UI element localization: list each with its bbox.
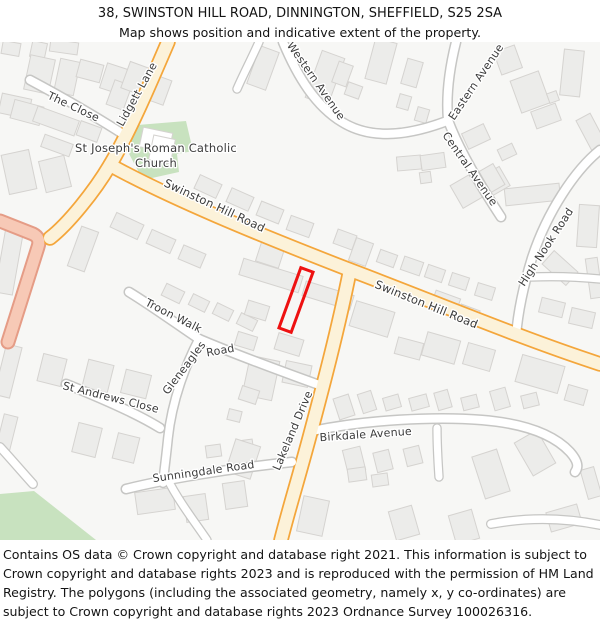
building	[419, 171, 431, 183]
header: 38, SWINSTON HILL ROAD, DINNINGTON, SHEF…	[0, 0, 600, 42]
page-title: 38, SWINSTON HILL ROAD, DINNINGTON, SHEF…	[0, 5, 600, 24]
map-svg: The CloseLidgett LaneSt Joseph's Roman C…	[0, 42, 600, 540]
building	[396, 155, 421, 171]
road-birkdale-stub	[437, 428, 439, 477]
building	[560, 49, 585, 97]
map-canvas: The CloseLidgett LaneSt Joseph's Roman C…	[0, 42, 600, 540]
page-subtitle: Map shows position and indicative extent…	[0, 24, 600, 42]
title-plan-page: 38, SWINSTON HILL ROAD, DINNINGTON, SHEF…	[0, 0, 600, 625]
map-label-st-joseph-s-roman-catholic: St Joseph's Roman Catholic	[75, 141, 237, 155]
building	[227, 409, 242, 423]
building	[222, 481, 247, 510]
footer: Contains OS data © Crown copyright and d…	[0, 540, 600, 622]
building	[205, 444, 222, 458]
building	[371, 473, 389, 487]
map-label-church: Church	[135, 156, 177, 170]
building	[1, 42, 21, 56]
road-high-nook-branch	[531, 277, 600, 279]
building	[420, 152, 446, 170]
copyright-text: Contains OS data © Crown copyright and d…	[3, 545, 596, 622]
building	[347, 467, 367, 482]
building	[577, 204, 600, 247]
